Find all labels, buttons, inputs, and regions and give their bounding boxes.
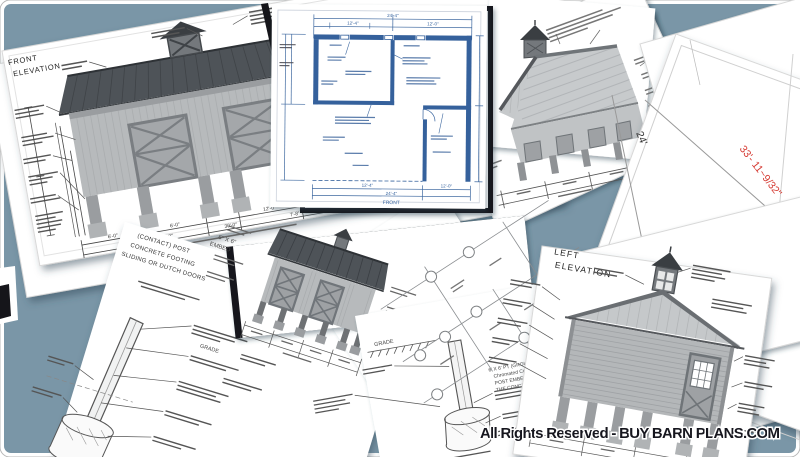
svg-text:FRONT: FRONT	[383, 200, 400, 206]
svg-text:24'-4": 24'-4"	[386, 191, 398, 196]
svg-text:24'-4": 24'-4"	[387, 13, 399, 18]
svg-text:12'-4": 12'-4"	[362, 183, 374, 188]
svg-text:12'-4": 12'-4"	[347, 21, 359, 26]
svg-text:12'-0": 12'-0"	[427, 21, 439, 26]
svg-text:All Rights Reserved - BUY BARN: All Rights Reserved - BUY BARN PLANS.COM	[480, 425, 780, 442]
svg-text:12'-0": 12'-0"	[441, 183, 453, 188]
